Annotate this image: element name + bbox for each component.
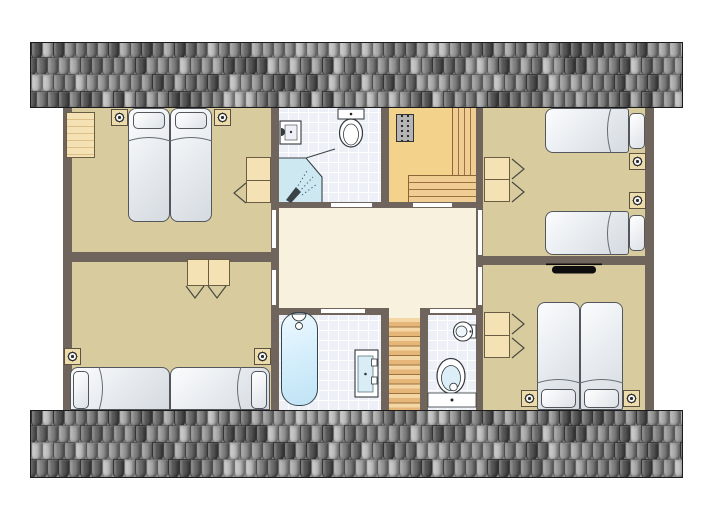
roof-tile bbox=[256, 91, 267, 108]
door-bedroom-bottom-right bbox=[478, 267, 482, 305]
desk-bedroom-top-left bbox=[246, 157, 271, 203]
roof-tile bbox=[168, 91, 179, 108]
roof-tile bbox=[311, 459, 322, 478]
roof-tile bbox=[663, 91, 674, 108]
roof-tile bbox=[388, 459, 399, 478]
roof-tile bbox=[245, 91, 256, 108]
roof-tile bbox=[597, 91, 608, 108]
roof-tile bbox=[652, 91, 663, 108]
pillow bbox=[629, 113, 645, 149]
roof-tile bbox=[69, 459, 80, 478]
roof-tile bbox=[575, 91, 586, 108]
wall-light bbox=[64, 348, 81, 365]
roof-tile bbox=[597, 459, 608, 478]
roof-tile bbox=[487, 459, 498, 478]
roof-tile bbox=[190, 91, 201, 108]
roof-tile bbox=[223, 91, 234, 108]
roof-tile bbox=[179, 459, 190, 478]
roof-tile bbox=[289, 91, 300, 108]
roof-tile bbox=[542, 459, 553, 478]
room-wc bbox=[428, 315, 476, 410]
pillow bbox=[133, 112, 165, 129]
roof-tile bbox=[300, 91, 311, 108]
roof-tile bbox=[58, 91, 69, 108]
pillow bbox=[73, 371, 89, 409]
roof-tile bbox=[520, 459, 531, 478]
wall-light bbox=[521, 390, 538, 407]
roof-tile bbox=[168, 459, 179, 478]
roof-tile bbox=[564, 459, 575, 478]
door-bedroom-top-right bbox=[478, 210, 482, 255]
wall-light bbox=[623, 390, 640, 407]
roof-tile bbox=[619, 459, 630, 478]
roof-tile bbox=[135, 459, 146, 478]
roof-tile bbox=[344, 459, 355, 478]
roof-tile bbox=[663, 459, 674, 478]
roof-tile bbox=[234, 91, 245, 108]
roof-tile bbox=[146, 91, 157, 108]
door-bedroom-bottom-left bbox=[272, 270, 276, 305]
roof-tile bbox=[212, 459, 223, 478]
staircase-bottom-flight bbox=[408, 175, 476, 202]
roof-tile bbox=[553, 91, 564, 108]
roof-tile bbox=[91, 91, 102, 108]
roof-tile bbox=[377, 459, 388, 478]
roof-tile bbox=[124, 91, 135, 108]
roof-tile bbox=[102, 91, 113, 108]
roof-tile bbox=[201, 459, 212, 478]
roof-tile bbox=[388, 91, 399, 108]
roof-tile bbox=[245, 459, 256, 478]
roof-tile bbox=[421, 91, 432, 108]
roof-tile bbox=[311, 91, 322, 108]
door-stair-landing bbox=[413, 203, 452, 207]
door-wc bbox=[430, 309, 472, 313]
roof-tile bbox=[47, 459, 58, 478]
roof-tile bbox=[366, 459, 377, 478]
roof-tile bbox=[410, 91, 421, 108]
roof-tile bbox=[201, 91, 212, 108]
roof-tile bbox=[531, 91, 542, 108]
roof-tile bbox=[641, 91, 652, 108]
bathtub bbox=[281, 312, 318, 406]
desk-bedroom-bottom-left bbox=[187, 259, 230, 286]
roof-tile bbox=[157, 459, 168, 478]
room-bathroom-top bbox=[279, 100, 381, 202]
roof-tile bbox=[333, 459, 344, 478]
floor-plan-canvas bbox=[0, 0, 713, 519]
roof-tile bbox=[113, 91, 124, 108]
roof-bottom bbox=[30, 410, 683, 478]
wall-light bbox=[629, 192, 646, 209]
roof-tile bbox=[278, 91, 289, 108]
roof-tile bbox=[509, 91, 520, 108]
roof-tile bbox=[289, 459, 300, 478]
roof-tile bbox=[476, 91, 487, 108]
wall-light bbox=[111, 109, 128, 126]
pillow bbox=[251, 371, 267, 409]
roof-tile bbox=[113, 459, 124, 478]
mattress bbox=[545, 108, 629, 153]
roof-tile bbox=[102, 459, 113, 478]
roof-tile bbox=[91, 459, 102, 478]
roof-tile bbox=[212, 91, 223, 108]
roof-tile bbox=[157, 91, 168, 108]
roof-tile bbox=[124, 459, 135, 478]
roof-tile bbox=[630, 459, 641, 478]
roof-tile bbox=[300, 459, 311, 478]
door-bathroom-top bbox=[331, 203, 372, 207]
roof-tile bbox=[509, 459, 520, 478]
roof-tile bbox=[575, 459, 586, 478]
room-hallway bbox=[279, 208, 476, 308]
mattress bbox=[545, 211, 629, 255]
roof-tile bbox=[322, 91, 333, 108]
roof-tile bbox=[619, 91, 630, 108]
desk-bedroom-bottom-right bbox=[484, 312, 510, 358]
roof-tile bbox=[234, 459, 245, 478]
roof-tile bbox=[465, 459, 476, 478]
roof-tile bbox=[36, 91, 47, 108]
pillow bbox=[175, 112, 207, 129]
roof-tile bbox=[674, 459, 683, 478]
pillow bbox=[629, 215, 645, 251]
desk-bedroom-top-right bbox=[484, 157, 510, 202]
roof-tile bbox=[322, 459, 333, 478]
meter-cabinet bbox=[396, 114, 414, 142]
roof-tile bbox=[344, 91, 355, 108]
roof-tile bbox=[674, 91, 683, 108]
roof-tile bbox=[135, 91, 146, 108]
roof-tile bbox=[190, 459, 201, 478]
roof-tile bbox=[586, 91, 597, 108]
roof-tile bbox=[586, 459, 597, 478]
roof-tile bbox=[421, 459, 432, 478]
roof-tile bbox=[520, 91, 531, 108]
wall-light bbox=[254, 348, 271, 365]
roof-tile bbox=[476, 459, 487, 478]
roof-tile bbox=[542, 91, 553, 108]
roof-tile bbox=[69, 91, 80, 108]
roof-tile bbox=[454, 459, 465, 478]
roof-tile bbox=[443, 459, 454, 478]
roof-tile bbox=[465, 91, 476, 108]
roof-tile bbox=[267, 459, 278, 478]
roof-tile bbox=[608, 91, 619, 108]
staircase-down-treads bbox=[389, 318, 420, 410]
roof-tile bbox=[410, 459, 421, 478]
roof-tile bbox=[652, 459, 663, 478]
roof-tile bbox=[179, 91, 190, 108]
roof-tile bbox=[256, 459, 267, 478]
roof-tile bbox=[146, 459, 157, 478]
roof-tile bbox=[36, 459, 47, 478]
roof-tile bbox=[399, 459, 410, 478]
pillow bbox=[584, 389, 619, 408]
roof-tile bbox=[443, 91, 454, 108]
roof-tile bbox=[333, 91, 344, 108]
roof-tile bbox=[399, 91, 410, 108]
roof-tile bbox=[80, 91, 91, 108]
roof-tile bbox=[564, 91, 575, 108]
roof-tile bbox=[553, 459, 564, 478]
roof-tile bbox=[641, 459, 652, 478]
roof-tile bbox=[47, 91, 58, 108]
roof-tile bbox=[432, 459, 443, 478]
roof-tile bbox=[278, 459, 289, 478]
roof-tile bbox=[608, 459, 619, 478]
roof-tile bbox=[223, 459, 234, 478]
wardrobe bbox=[66, 112, 95, 158]
roof-tile bbox=[80, 459, 91, 478]
roof-tile bbox=[432, 91, 443, 108]
roof-tile bbox=[630, 91, 641, 108]
roof-tile bbox=[498, 91, 509, 108]
roof-tile bbox=[355, 91, 366, 108]
door-bathroom-bottom bbox=[321, 309, 365, 313]
roof-tile bbox=[498, 459, 509, 478]
roof-tile bbox=[487, 91, 498, 108]
roof-tile bbox=[58, 459, 69, 478]
roof-tile bbox=[355, 459, 366, 478]
roof-tile bbox=[366, 91, 377, 108]
roof-tile bbox=[531, 459, 542, 478]
roof-top bbox=[30, 42, 683, 108]
wall-light bbox=[629, 153, 646, 170]
wall-light bbox=[214, 109, 231, 126]
door-bedroom-top-left bbox=[272, 210, 276, 248]
pillow bbox=[541, 389, 576, 408]
roof-tile bbox=[454, 91, 465, 108]
roof-tile bbox=[377, 91, 388, 108]
roof-tile bbox=[267, 91, 278, 108]
